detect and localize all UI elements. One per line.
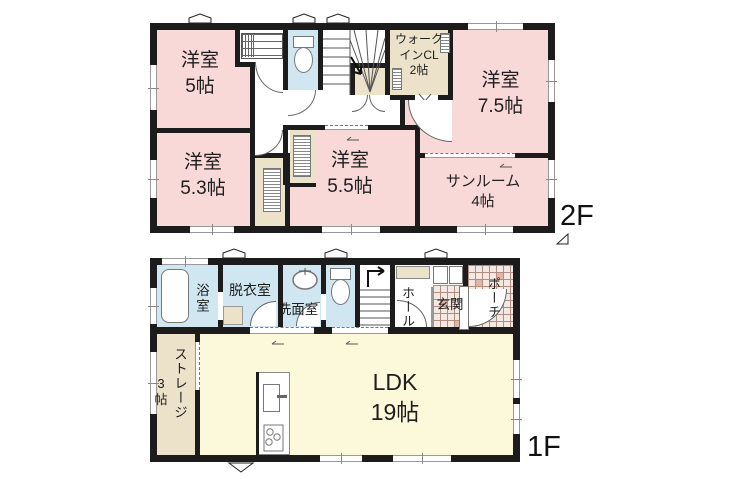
wall xyxy=(390,265,395,327)
door-arc-understairs-right xyxy=(369,95,385,112)
room-label-hall: ホール xyxy=(398,286,417,328)
slide-direction-mark xyxy=(270,340,286,349)
sliding-door xyxy=(250,327,314,334)
eave-vent-icon xyxy=(228,462,254,473)
floor-plan-canvas: 洋室 5帖 ウォーク インCL 2帖 洋室 7.5帖 洋室 5.3帖 洋室 5.… xyxy=(0,0,735,500)
slide-direction-mark xyxy=(345,136,361,145)
room-label-storage-size: 3 帖 xyxy=(152,376,170,407)
sliding-door xyxy=(325,125,368,130)
roof-vent-icon xyxy=(324,248,348,259)
window xyxy=(322,226,380,233)
corner-vent-icon xyxy=(556,233,569,245)
window xyxy=(320,455,362,462)
roof-vent-icon xyxy=(326,13,350,24)
room-label-washroom: 洗面室 xyxy=(272,301,324,319)
room-label-sunroom: サンルーム 4帖 xyxy=(418,172,548,213)
room-label-storage: ストレージ xyxy=(169,347,189,420)
room-label-entrance: 玄関 xyxy=(432,296,468,314)
window xyxy=(150,288,157,324)
staircase-1f xyxy=(360,265,390,327)
shoe-cabinet xyxy=(449,266,463,284)
door-arc-room5 xyxy=(255,62,283,93)
room-label-western5: 洋室 5帖 xyxy=(157,48,243,99)
room-label-dressing: 脱衣室 xyxy=(221,281,279,300)
door-arc-toilet-2f xyxy=(288,90,316,116)
faucet-icon xyxy=(277,395,287,398)
toilet-bowl-icon xyxy=(331,279,350,305)
slide-direction-mark xyxy=(344,340,360,349)
room-label-western55: 洋室 5.5帖 xyxy=(296,148,404,199)
window xyxy=(150,160,157,198)
laundry-counter xyxy=(223,306,243,325)
kitchen-sink-icon xyxy=(263,384,280,412)
stove-icon xyxy=(263,424,284,452)
shelf-grid xyxy=(242,34,254,57)
room-label-wicl: ウォーク インCL 2帖 xyxy=(390,32,448,79)
closet-hanger-hatch xyxy=(263,168,281,212)
wall xyxy=(283,30,288,90)
floor-tag-1f: 1F xyxy=(527,431,561,464)
room-label-porch: ポーチ xyxy=(484,277,503,319)
hall-cabinet xyxy=(396,266,430,279)
window xyxy=(457,226,513,233)
roof-vent-icon xyxy=(292,13,316,24)
stairs-direction-arrow xyxy=(346,54,368,80)
washbasin-icon xyxy=(291,267,319,291)
room-label-bath: 浴室 xyxy=(191,283,211,314)
wall xyxy=(150,128,255,133)
room-label-western53: 洋室 5.3帖 xyxy=(157,150,249,201)
window xyxy=(150,65,157,110)
sliding-door xyxy=(332,327,388,334)
window xyxy=(513,404,520,434)
window xyxy=(548,60,555,102)
window xyxy=(513,360,520,398)
sliding-door xyxy=(195,342,200,390)
wall xyxy=(285,153,290,226)
shoe-cabinet xyxy=(433,266,448,284)
roof-vent-icon xyxy=(222,248,246,259)
roof-vent-icon xyxy=(188,13,212,24)
window xyxy=(190,226,234,233)
window xyxy=(468,23,523,30)
wall xyxy=(400,95,405,130)
wall xyxy=(548,23,555,233)
shelf-unit xyxy=(241,33,283,59)
door-arc-understairs-left xyxy=(352,95,368,112)
toilet-bowl-icon xyxy=(294,47,313,73)
bathtub-icon xyxy=(161,269,189,323)
room-label-ldk: LDK 19帖 xyxy=(330,368,460,428)
window xyxy=(548,160,555,198)
kitchen-counter-edge xyxy=(256,372,259,455)
roof-vent-icon xyxy=(424,248,448,259)
room-label-western75: 洋室 7.5帖 xyxy=(453,68,548,119)
floor-tag-2f: 2F xyxy=(560,200,594,233)
window xyxy=(162,258,208,265)
window xyxy=(393,455,451,462)
sliding-window xyxy=(425,153,515,158)
slide-direction-mark xyxy=(498,163,514,172)
